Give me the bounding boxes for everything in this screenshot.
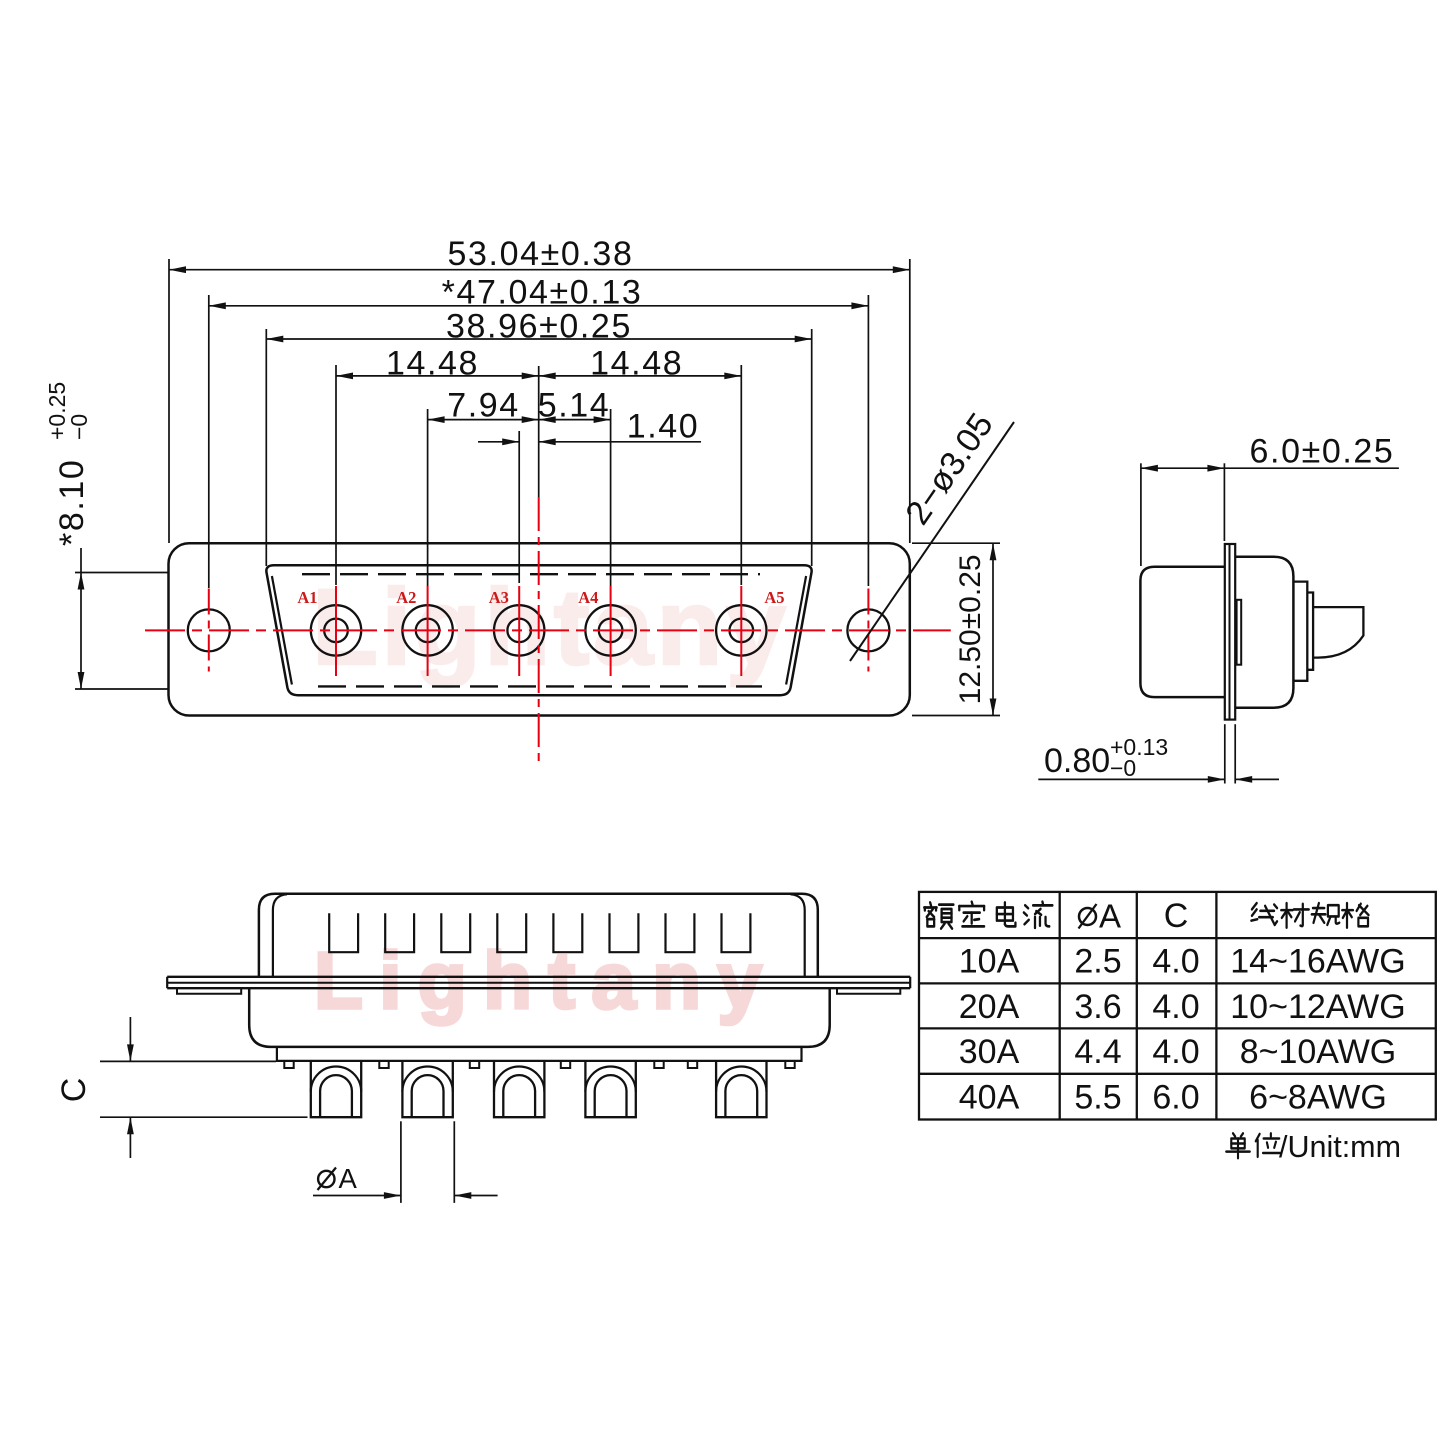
svg-text:2.5: 2.5 bbox=[1074, 943, 1121, 981]
svg-text:1.40: 1.40 bbox=[627, 408, 700, 446]
svg-text:C: C bbox=[55, 1078, 93, 1103]
svg-text:3.6: 3.6 bbox=[1074, 988, 1121, 1026]
svg-text:A1: A1 bbox=[297, 588, 317, 607]
svg-text:6~8AWG: 6~8AWG bbox=[1249, 1078, 1387, 1116]
svg-text:14.48: 14.48 bbox=[590, 345, 683, 383]
svg-text:12.50±0.25: 12.50±0.25 bbox=[954, 554, 987, 704]
svg-text:10A: 10A bbox=[959, 943, 1020, 981]
svg-text:53.04±0.38: 53.04±0.38 bbox=[448, 235, 634, 273]
svg-text:6.0: 6.0 bbox=[1152, 1078, 1199, 1116]
svg-text:C: C bbox=[1164, 897, 1189, 935]
svg-text:4.0: 4.0 bbox=[1152, 943, 1199, 981]
svg-text:*8.10: *8.10 bbox=[53, 459, 91, 546]
svg-text:14.48: 14.48 bbox=[386, 345, 479, 383]
svg-text:A: A bbox=[1099, 898, 1121, 935]
svg-text:10~12AWG: 10~12AWG bbox=[1230, 988, 1405, 1026]
svg-text:5.5: 5.5 bbox=[1074, 1078, 1121, 1116]
svg-text:A: A bbox=[339, 1163, 358, 1194]
svg-text:4.0: 4.0 bbox=[1152, 988, 1199, 1026]
svg-text:0.80: 0.80 bbox=[1044, 742, 1110, 780]
svg-text:−0: −0 bbox=[66, 414, 92, 440]
svg-text:A4: A4 bbox=[578, 588, 598, 607]
svg-text:5.14: 5.14 bbox=[538, 387, 611, 425]
svg-text:38.96±0.25: 38.96±0.25 bbox=[446, 308, 632, 346]
svg-text:14~16AWG: 14~16AWG bbox=[1230, 943, 1405, 981]
svg-text:8~10AWG: 8~10AWG bbox=[1240, 1033, 1397, 1071]
svg-text:40A: 40A bbox=[959, 1078, 1020, 1116]
svg-text:Lightany: Lightany bbox=[312, 566, 786, 687]
svg-text:6.0±0.25: 6.0±0.25 bbox=[1250, 433, 1395, 471]
svg-text:30A: 30A bbox=[959, 1033, 1020, 1071]
svg-text:−0: −0 bbox=[1110, 755, 1136, 781]
svg-text:20A: 20A bbox=[959, 988, 1020, 1026]
svg-text:A3: A3 bbox=[489, 588, 509, 607]
svg-text:4.4: 4.4 bbox=[1074, 1033, 1121, 1071]
svg-text:/Unit:mm: /Unit:mm bbox=[1279, 1130, 1401, 1164]
svg-text:A5: A5 bbox=[764, 588, 784, 607]
svg-text:*47.04±0.13: *47.04±0.13 bbox=[442, 274, 643, 312]
svg-text:7.94: 7.94 bbox=[447, 387, 520, 425]
svg-text:A2: A2 bbox=[396, 588, 416, 607]
svg-text:4.0: 4.0 bbox=[1152, 1033, 1199, 1071]
